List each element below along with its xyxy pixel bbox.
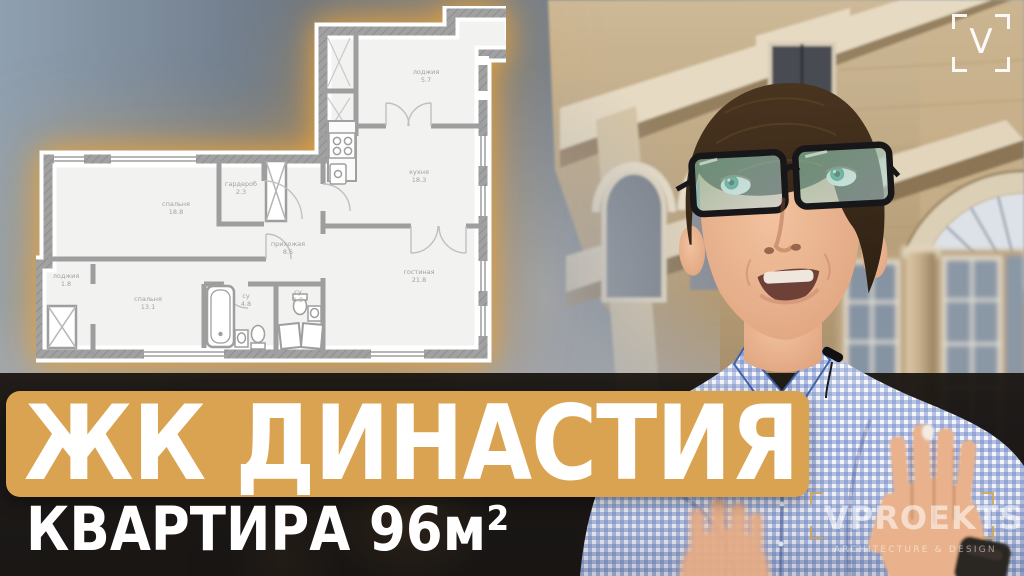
title-text: ЖК ДИНАСТИЯ xyxy=(24,393,799,496)
logo-letter: V xyxy=(952,22,1010,62)
room-label-area: 21.8 xyxy=(412,276,426,284)
room-label-area: 4.8 xyxy=(241,300,251,308)
washbasin-icon-2 xyxy=(308,306,321,321)
room-label-name: гардероб xyxy=(225,180,257,188)
room-label-area: 2.3 xyxy=(236,188,246,196)
watermark-subtitle: ARCHITECTURE & DESIGN xyxy=(834,545,997,555)
room-label-area: 5.7 xyxy=(421,76,431,84)
stove-icon xyxy=(329,133,355,158)
room-label-name: прихожая xyxy=(271,240,305,248)
kitchen-sink-icon xyxy=(330,164,346,184)
head xyxy=(671,77,907,345)
watermark-frame-corner xyxy=(810,492,823,505)
floor-plan-image: лоджия 5.7 кухня 18.3 гостиная 21.8 спал… xyxy=(36,6,506,371)
room-label-area: 1.9 xyxy=(293,296,303,304)
bathtub-icon xyxy=(207,286,234,347)
room-label-area: 18.3 xyxy=(412,176,426,184)
room-label-area: 1.8 xyxy=(61,280,71,288)
room-label-area: 8.5 xyxy=(283,248,293,256)
watermark: VPROEKTS ARCHITECTURE & DESIGN xyxy=(810,492,994,539)
toilet-icon xyxy=(251,326,265,350)
room-label-name: спальня xyxy=(162,200,190,208)
channel-logo: V xyxy=(952,14,1010,72)
room-label-name: кухня xyxy=(409,168,429,176)
room-label-name: спальня xyxy=(134,295,162,303)
room-label-area: 18.8 xyxy=(169,208,183,216)
room-label-name: лоджия xyxy=(413,68,440,76)
room-label-name: лоджия xyxy=(53,272,80,280)
ear-left xyxy=(678,225,707,276)
watermark-frame-corner xyxy=(810,526,823,539)
watermark-title: VPROEKTS xyxy=(824,499,1024,537)
fingernail xyxy=(922,424,934,440)
thumbnail: лоджия 5.7 кухня 18.3 гостиная 21.8 спал… xyxy=(0,0,1024,576)
room-label-name: су xyxy=(294,288,302,296)
room-label-area: 13.1 xyxy=(141,303,155,311)
title-banner: ЖК ДИНАСТИЯ xyxy=(6,391,809,497)
washbasin-icon xyxy=(235,330,248,347)
room-label-name: гостиная xyxy=(403,268,434,276)
subtitle-text: КВАРТИРА 96м² xyxy=(26,499,509,560)
room-label-name: су xyxy=(242,292,250,300)
